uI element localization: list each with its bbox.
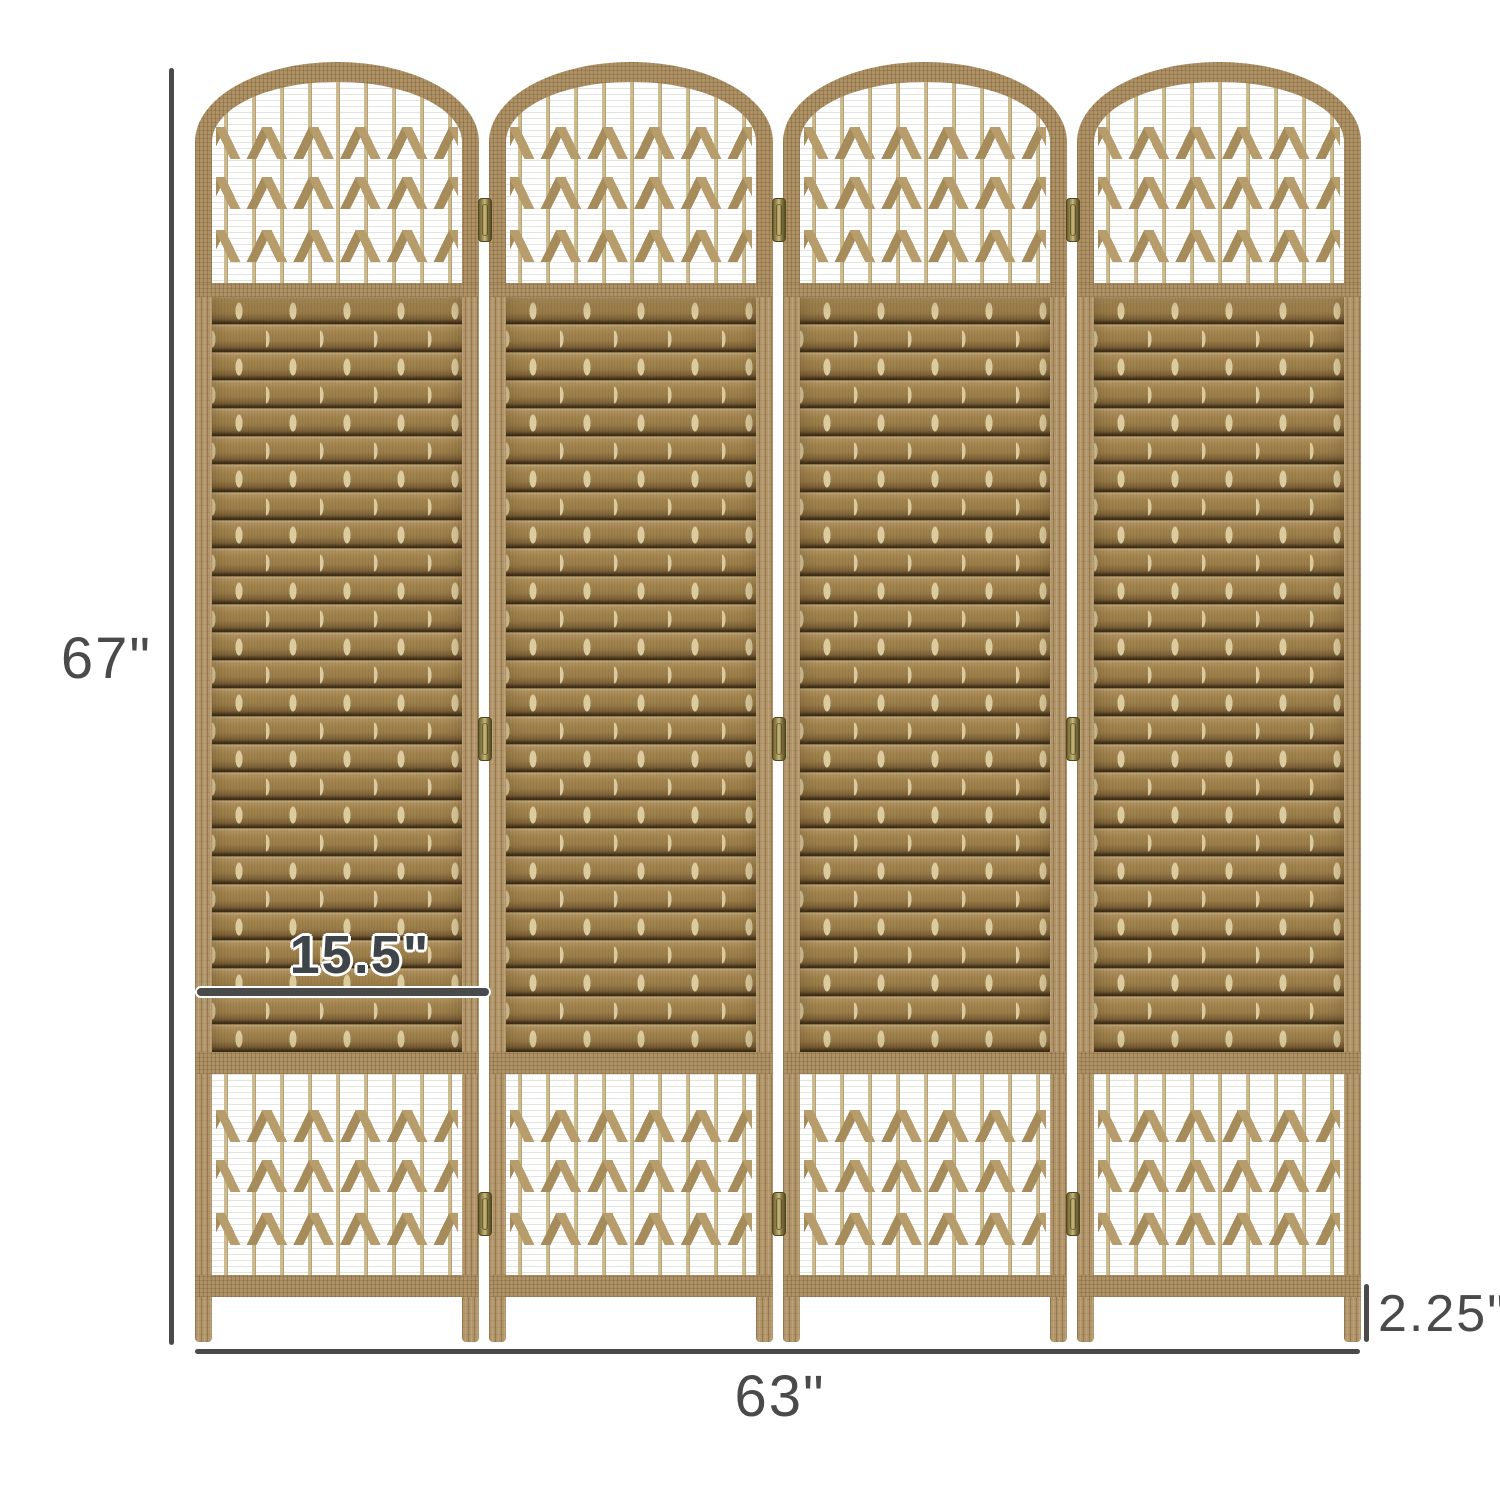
panel-leg bbox=[756, 1297, 773, 1342]
wicker-weave-texture bbox=[1094, 297, 1344, 1052]
panel-legs bbox=[783, 1297, 1067, 1342]
panel-arch-frame bbox=[783, 62, 1067, 283]
cross-weave-row bbox=[1098, 230, 1340, 262]
panel-width-dimension-label: 15.5" bbox=[235, 928, 485, 982]
wicker-weave-texture bbox=[506, 297, 756, 1052]
cross-weave-row bbox=[1098, 1160, 1340, 1192]
cross-weave-row bbox=[510, 1110, 752, 1142]
panel-arch-frame bbox=[489, 62, 773, 283]
panel-bottom-section bbox=[1077, 1074, 1361, 1275]
divider-panel-4 bbox=[1077, 62, 1361, 1342]
panel-leg bbox=[1050, 1297, 1067, 1342]
cross-weave-row bbox=[804, 177, 1046, 209]
panel-rail bbox=[783, 283, 1067, 297]
panel-arch-frame bbox=[195, 62, 479, 283]
panel-bottom-rail bbox=[195, 1275, 479, 1297]
panel-bottom-lattice bbox=[800, 1074, 1050, 1275]
panel-top-lattice bbox=[506, 82, 756, 283]
panel-weave-section bbox=[783, 297, 1067, 1052]
cross-weave-row bbox=[510, 230, 752, 262]
panel-bottom-lattice bbox=[1094, 1074, 1344, 1275]
hinge-icon bbox=[1066, 1192, 1080, 1236]
cross-weave-row bbox=[804, 230, 1046, 262]
panel-arch-frame bbox=[1077, 62, 1361, 283]
cross-weave-row bbox=[804, 127, 1046, 159]
divider-panel-3 bbox=[783, 62, 1067, 1342]
panel-bottom-section bbox=[783, 1074, 1067, 1275]
width-dimension-label: 63" bbox=[700, 1368, 860, 1426]
width-dimension-line bbox=[195, 1349, 1360, 1354]
panel-bottom-section bbox=[195, 1074, 479, 1275]
cross-weave-row bbox=[1098, 1213, 1340, 1245]
panel-bottom-rail bbox=[1077, 1275, 1361, 1297]
panel-legs bbox=[1077, 1297, 1361, 1342]
hinge-icon bbox=[772, 1192, 786, 1236]
hinge-icon bbox=[772, 198, 786, 242]
height-dimension-line bbox=[169, 68, 174, 1345]
height-dimension-label: 67" bbox=[52, 630, 152, 688]
cross-weave-row bbox=[510, 127, 752, 159]
cross-weave-row bbox=[1098, 177, 1340, 209]
cross-weave-row bbox=[216, 127, 458, 159]
hinge-icon bbox=[1066, 717, 1080, 761]
panel-rail bbox=[489, 1052, 773, 1074]
cross-weave-row bbox=[216, 1213, 458, 1245]
panel-rail bbox=[195, 1052, 479, 1074]
cross-weave-row bbox=[1098, 127, 1340, 159]
panel-bottom-lattice bbox=[506, 1074, 756, 1275]
cross-weave-row bbox=[804, 1160, 1046, 1192]
panel-top-lattice bbox=[800, 82, 1050, 283]
cross-weave-row bbox=[1098, 1110, 1340, 1142]
cross-weave-row bbox=[216, 1160, 458, 1192]
wicker-weave-texture bbox=[800, 297, 1050, 1052]
panel-bottom-rail bbox=[489, 1275, 773, 1297]
cross-weave-row bbox=[510, 1213, 752, 1245]
cross-weave-row bbox=[510, 1160, 752, 1192]
panel-leg bbox=[1344, 1297, 1361, 1342]
room-divider-screen bbox=[195, 62, 1361, 1342]
panel-leg bbox=[1077, 1297, 1094, 1342]
panel-rail bbox=[489, 283, 773, 297]
panel-leg bbox=[195, 1297, 212, 1342]
panel-leg bbox=[783, 1297, 800, 1342]
panel-top-lattice bbox=[212, 82, 462, 283]
panel-leg bbox=[489, 1297, 506, 1342]
panel-bottom-section bbox=[489, 1074, 773, 1275]
cross-weave-row bbox=[804, 1213, 1046, 1245]
divider-panel-1 bbox=[195, 62, 479, 1342]
hinge-icon bbox=[478, 717, 492, 761]
panel-weave-section bbox=[489, 297, 773, 1052]
divider-panel-2 bbox=[489, 62, 773, 1342]
product-dimension-diagram: 67" 63" 15.5" 2.25" bbox=[0, 0, 1500, 1500]
panel-top-lattice bbox=[1094, 82, 1344, 283]
panel-legs bbox=[195, 1297, 479, 1342]
panel-rail bbox=[1077, 283, 1361, 297]
panel-rail bbox=[1077, 1052, 1361, 1074]
hinge-icon bbox=[1066, 198, 1080, 242]
cross-weave-row bbox=[510, 177, 752, 209]
cross-weave-row bbox=[216, 1110, 458, 1142]
hinge-icon bbox=[478, 1192, 492, 1236]
panel-width-dimension-line bbox=[197, 988, 489, 996]
panel-rail bbox=[195, 283, 479, 297]
hinge-icon bbox=[772, 717, 786, 761]
foot-height-dimension-line bbox=[1364, 1284, 1369, 1342]
cross-weave-row bbox=[216, 230, 458, 262]
cross-weave-row bbox=[216, 177, 458, 209]
panel-bottom-rail bbox=[783, 1275, 1067, 1297]
panel-leg bbox=[462, 1297, 479, 1342]
panel-legs bbox=[489, 1297, 773, 1342]
cross-weave-row bbox=[804, 1110, 1046, 1142]
foot-height-dimension-label: 2.25" bbox=[1378, 1288, 1500, 1340]
hinge-icon bbox=[478, 198, 492, 242]
panel-weave-section bbox=[1077, 297, 1361, 1052]
panel-rail bbox=[783, 1052, 1067, 1074]
panel-bottom-lattice bbox=[212, 1074, 462, 1275]
